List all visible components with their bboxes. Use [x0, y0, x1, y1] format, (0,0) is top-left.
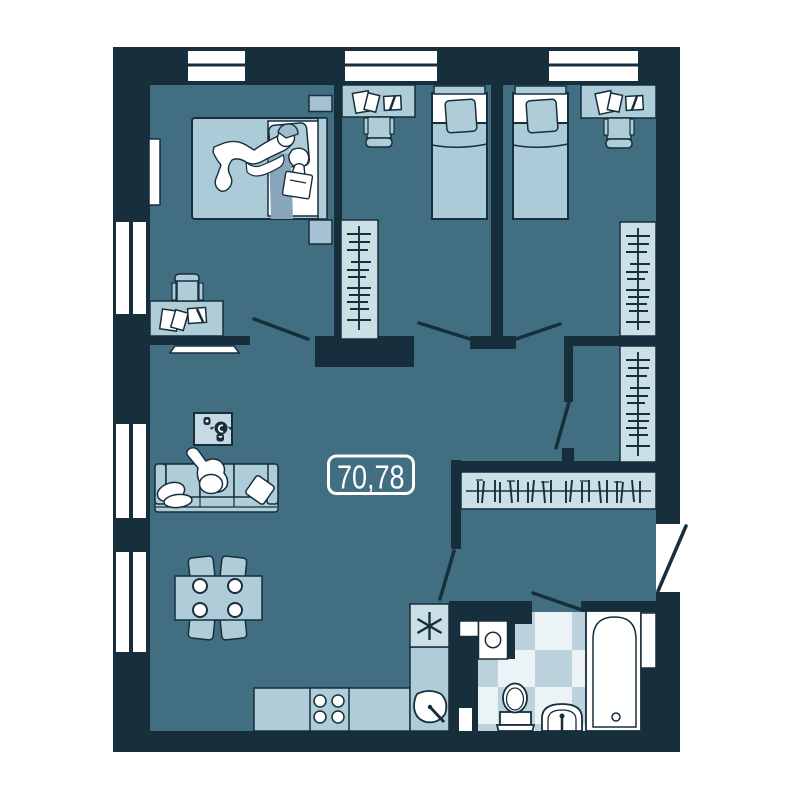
svg-text:70,78: 70,78 — [337, 459, 405, 496]
